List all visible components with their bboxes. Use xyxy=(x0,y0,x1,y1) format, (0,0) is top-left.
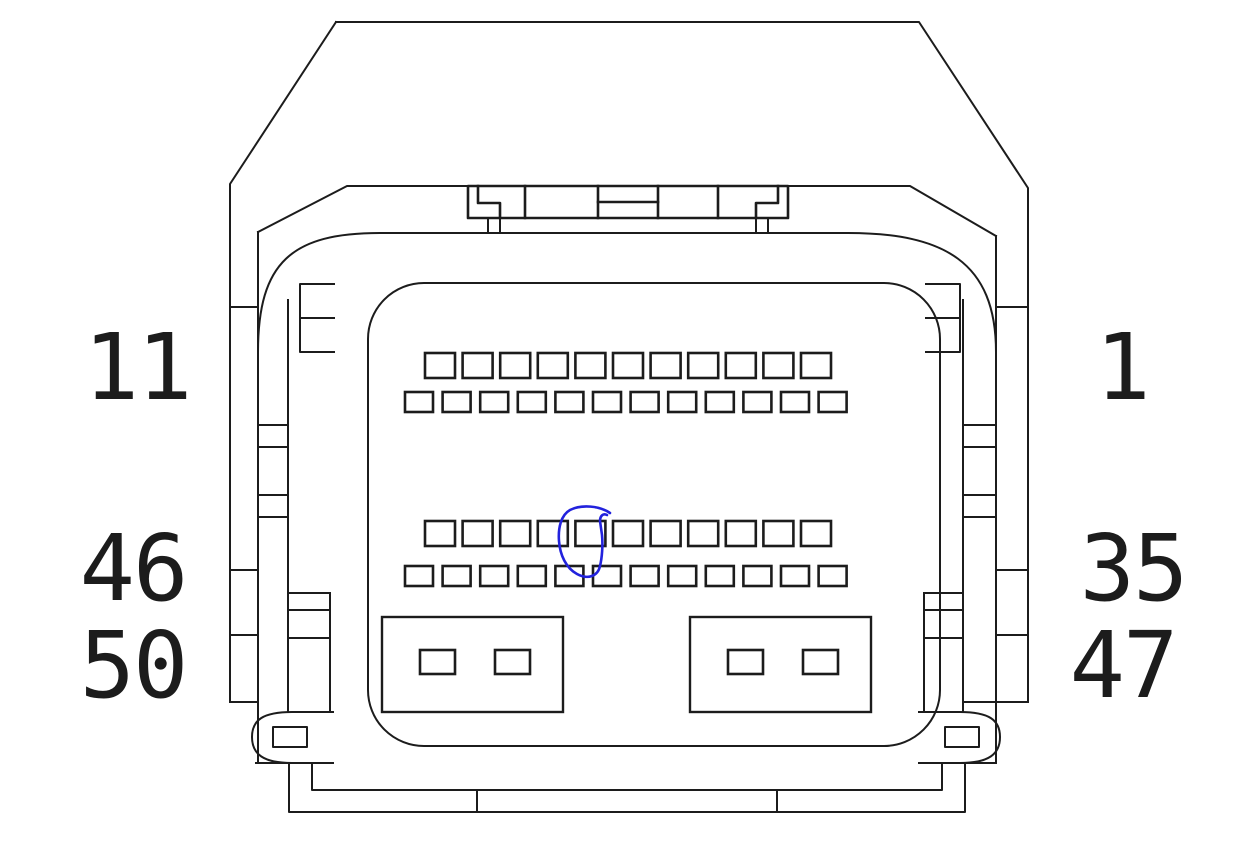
pin-label-bottom-right: 47 xyxy=(1070,612,1177,719)
ear-left xyxy=(252,712,333,763)
row-pins-35-46-pin xyxy=(781,566,809,586)
power-pin-blocks xyxy=(382,617,871,712)
polarization-keys xyxy=(300,284,960,352)
row-pins-24-34-pin xyxy=(726,521,756,546)
pin-label-mid-right: 35 xyxy=(1080,515,1187,622)
row-pins-24-34-pin xyxy=(688,521,718,546)
row-pins-12-23-pin xyxy=(405,392,433,412)
row-pins-12-23-pin xyxy=(518,392,546,412)
row-pins-24-34-pin xyxy=(538,521,568,546)
power-block-right-pin xyxy=(803,650,838,674)
row-pins-35-46-pin xyxy=(518,566,546,586)
row-pins-12-23-pin xyxy=(819,392,847,412)
power-block-left-pin xyxy=(495,650,530,674)
pin-label-top-left: 11 xyxy=(84,314,191,421)
row-pins-24-34-pin xyxy=(613,521,643,546)
pin-label-mid-left: 46 xyxy=(80,515,187,622)
ear-left-slot xyxy=(273,727,307,747)
ear-right-slot xyxy=(945,727,979,747)
row-pins-35-46-pin xyxy=(668,566,696,586)
row-pins-1-11-pin xyxy=(801,353,831,378)
base-and-ears xyxy=(252,712,1000,812)
power-block-right-pin xyxy=(728,650,763,674)
row-pins-1-11-pin xyxy=(613,353,643,378)
row-pins-1-11-pin xyxy=(425,353,455,378)
row-pins-12-23-pin xyxy=(781,392,809,412)
row-pins-24-34-pin xyxy=(500,521,530,546)
row-pins-12-23-pin xyxy=(668,392,696,412)
row-pins-12-23-pin xyxy=(743,392,771,412)
pin-grid xyxy=(405,353,847,586)
side-wall-channels xyxy=(230,232,1028,763)
row-pins-35-46-pin xyxy=(706,566,734,586)
row-pins-1-11-pin xyxy=(463,353,493,378)
row-pins-1-11-pin xyxy=(726,353,756,378)
row-pins-12-23-pin xyxy=(593,392,621,412)
row-pins-1-11-pin xyxy=(688,353,718,378)
row-pins-35-46-pin xyxy=(819,566,847,586)
row-pins-12-23-pin xyxy=(706,392,734,412)
row-pins-1-11-pin xyxy=(763,353,793,378)
row-pins-24-34-pin xyxy=(425,521,455,546)
row-pins-12-23-pin xyxy=(555,392,583,412)
latch-hook-right xyxy=(756,186,778,218)
row-pins-35-46-pin xyxy=(443,566,471,586)
pin-label-top-right: 1 xyxy=(1095,314,1148,421)
row-pins-24-34-pin xyxy=(651,521,681,546)
row-pins-24-34-pin xyxy=(763,521,793,546)
latch-hook-left xyxy=(478,186,500,218)
connector-diagram: 11 1 46 50 35 47 xyxy=(0,0,1251,863)
key-right xyxy=(926,284,960,352)
connector-drawing: 11 1 46 50 35 47 xyxy=(0,0,1251,863)
pin-number-labels: 11 1 46 50 35 47 xyxy=(80,314,1187,719)
row-pins-35-46-pin xyxy=(743,566,771,586)
row-pins-24-34-pin xyxy=(801,521,831,546)
row-pins-1-11-pin xyxy=(500,353,530,378)
power-block-left xyxy=(382,617,563,712)
row-pins-1-11-pin xyxy=(575,353,605,378)
power-block-right xyxy=(690,617,871,712)
row-pins-35-46-pin xyxy=(405,566,433,586)
key-left xyxy=(300,284,334,352)
row-pins-12-23-pin xyxy=(443,392,471,412)
row-pins-12-23-pin xyxy=(480,392,508,412)
row-pins-12-23-pin xyxy=(631,392,659,412)
power-block-left-pin xyxy=(420,650,455,674)
row-pins-35-46-pin xyxy=(593,566,621,586)
row-pins-24-34-pin xyxy=(463,521,493,546)
row-pins-35-46-pin xyxy=(631,566,659,586)
row-pins-35-46-pin xyxy=(480,566,508,586)
pin-label-bottom-left: 50 xyxy=(80,612,187,719)
row-pins-1-11-pin xyxy=(651,353,681,378)
outer-housing-outline xyxy=(230,22,1028,702)
row-pins-1-11-pin xyxy=(538,353,568,378)
